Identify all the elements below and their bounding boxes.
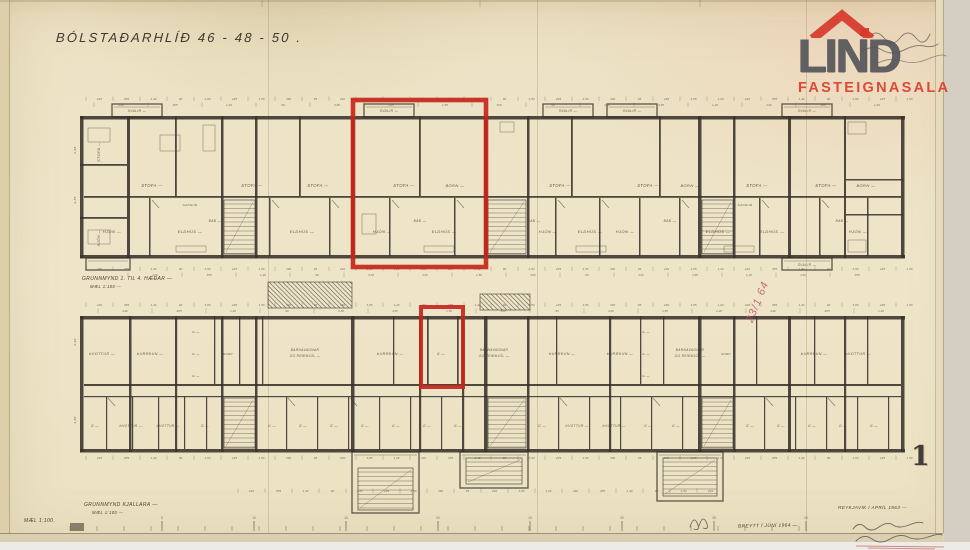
furniture-outline [500,122,514,132]
upper-plan-caption: GRUNNMYND 1. TIL 4. HÆÐAR — [82,276,172,282]
scalebar-number: 25 [528,516,532,520]
plan-wall [527,116,530,258]
room-label: ELDHÚS — [706,229,731,234]
dim-number: 390 [610,456,615,460]
dim-number: 385 [448,456,453,460]
room-label: GANGUR [183,203,198,207]
room-label: 2,40 [73,338,77,346]
plan-wall [620,397,621,449]
dim-number: 3,65 [690,303,696,307]
dim-number: 240 [603,103,609,107]
dim-number: 240 [744,97,750,101]
dim-number: 245 [555,303,561,307]
room-label: STOFA — [97,142,101,162]
dim-number: 95 [585,273,589,277]
plan-wall [846,214,903,216]
place-date: REYKJAVÍK Í APRÍL 1963 — [838,505,907,510]
dim-number: 3,65 [366,303,372,307]
room-label: GANGUR [738,203,753,207]
plan-wall [640,316,641,384]
plan-wall [663,316,664,384]
lower-plan-scale: MÆL 1:100 — [92,510,123,515]
stair-arrow [490,400,524,446]
handwriting-scribble [853,522,923,530]
room-label: OG REIÐHJÓL — [290,353,321,358]
dim-number: 1,20 [746,273,752,277]
dim-number: 90 [827,267,831,271]
plan-wall [129,316,132,452]
dim-number: 390 [496,103,501,107]
room-label: ÞVOTTUR — [89,352,115,356]
plan-wall [527,316,530,452]
room-label: STOFA — [549,183,571,188]
dim-number: 95 [638,267,642,271]
dim-number: 390 [610,97,615,101]
dim-number: 1,40 [226,103,232,107]
dim-number: 1,50 [258,267,264,271]
scalebar-number: 10 [252,516,256,520]
room-label: SORP [721,352,731,356]
dim-number: 90 [281,103,285,107]
plan-wall [589,397,590,449]
dim-number: 1,40 [302,489,308,493]
dim-number: 90 [285,309,289,313]
room-label: ÞURRKUN — [549,352,576,356]
room-label: ÞVOTTUR — [845,352,871,356]
room-label: G — [192,330,200,334]
room-label: G — [299,424,307,428]
room-label: G — [746,424,754,428]
plan-wall [764,397,765,449]
room-label: G — [192,374,200,378]
plan-wall [132,397,133,449]
dim-number: 95 [638,303,642,307]
dim-number: 3,65 [690,267,696,271]
hatch-line [332,282,352,302]
dim-number: 3,65 [692,273,698,277]
dim-number: 3,65 [518,489,524,493]
dim-number: 1,50 [582,303,588,307]
dim-number: 240 [339,456,345,460]
dim-number: 3,80 [528,97,534,101]
dim-number: 385 [772,456,777,460]
plan-wall [80,116,84,258]
door-swing [762,200,769,208]
room-label: 3,80 [73,416,77,423]
dim-number: 3,80 [528,303,534,307]
dim-number: 240 [248,489,254,493]
dim-number: 240 [744,267,750,271]
room-label: ELDHÚS — [760,229,785,234]
dim-number: 3,80 [680,489,686,493]
dim-number: 245 [879,97,885,101]
door-swing [653,398,660,406]
dim-number: 240 [339,267,345,271]
door-swing [558,200,565,208]
plan-wall [795,397,796,449]
dim-number: 1,50 [258,303,264,307]
hatch-line [482,294,498,310]
dim-number: 90 [179,97,183,101]
furniture-outline [176,246,206,252]
furniture-outline [576,246,606,252]
room-label: ÞVOTTUR — [603,424,626,428]
plan-wall [286,397,287,449]
plan-wall [901,116,905,258]
dim-number: 95 [314,267,318,271]
dim-number: 3,65 [366,456,372,460]
room-label: ELDHÚS — [432,229,457,234]
dim-number: 1,40 [150,456,156,460]
dim-number: 385 [772,97,777,101]
room-label: STOFA — [241,183,263,188]
plan-wall [158,397,159,449]
dim-number: 95 [638,97,642,101]
plan-wall [826,397,827,449]
room-label: G — [423,424,431,428]
dim-number: 1,50 [258,97,264,101]
plan-wall [175,116,177,196]
dim-number: 1,50 [906,97,912,101]
room-label: STOFA — [307,183,329,188]
room-label: HJÓN — [373,229,392,234]
dim-number: 385 [824,309,829,313]
dim-number: 95 [466,489,470,493]
dim-number: 385 [600,489,605,493]
plan-wall [214,316,215,384]
red-underline [856,546,944,547]
dim-number: 1,40 [626,489,632,493]
plan-wall [857,397,858,449]
room-label: STOFA — [637,183,659,188]
plan-wall [844,316,846,452]
dim-number: 90 [503,303,507,307]
dim-number: 1,50 [446,309,452,313]
dim-number: 240 [769,309,775,313]
dim-number: 1,20 [717,456,723,460]
plan-wall [659,116,661,196]
room-label: 3,85 [73,196,77,203]
dim-number: 1,20 [717,303,723,307]
furniture-outline [203,125,215,151]
hatch-line [268,290,286,308]
dim-number: 390 [286,456,291,460]
room-label: HJÓN — [539,229,558,234]
room-label: HJÓN — [96,230,101,247]
room-label: STOFA — [393,183,415,188]
room-label: G — [777,424,785,428]
plan-wall [788,316,791,452]
room-label: OG REIÐHJÓL — [675,353,706,358]
upper-plan-scale: MÆL 1:100 — [90,284,121,289]
plan-wall [441,397,442,449]
plan-wall [756,316,757,384]
hatch-line [487,294,503,310]
dim-number: 390 [610,267,615,271]
room-label: HJÓN — [616,229,635,234]
plan-wall [348,397,349,449]
plan-wall [239,316,240,384]
dim-number: 3,65 [690,97,696,101]
dim-number: 3,80 [528,267,534,271]
furniture-outline [848,240,866,252]
dim-number: 1,50 [906,267,912,271]
hatch-line [509,294,525,310]
dim-number: 3,80 [204,303,210,307]
dim-number: 240 [121,309,127,313]
dim-number: 1,40 [260,273,266,277]
lind-logo-subtitle: FASTEIGNASALA [798,80,958,96]
scalebar-zero-block [70,523,84,531]
dim-number: 245 [555,456,561,460]
room-label: BÖRN — [856,183,876,188]
dim-number: 1,50 [442,103,448,107]
handwriting-scribble [690,519,708,530]
dim-number: 385 [772,267,777,271]
hatch-line [527,294,530,297]
room-label: ÞVOTTUR — [566,424,589,428]
door-swing [332,200,339,208]
dim-number: 1,20 [712,103,718,107]
dim-number: 1,40 [150,267,156,271]
door-swing [602,200,609,208]
dim-number: 385 [820,103,825,107]
plan-wall [555,198,557,256]
dim-number: 245 [421,273,427,277]
dim-number: 1,50 [476,273,482,277]
door-swing [457,200,464,208]
plan-wall [149,198,151,256]
dim-number: 245 [555,97,561,101]
plan-wall [651,397,652,449]
room-label: G — [201,424,209,428]
dim-number: 90 [315,273,319,277]
stair-arrow [226,400,253,446]
room-label: SORP [223,352,233,356]
room-label: G — [330,424,338,428]
room-label: ELDHÚS — [290,229,315,234]
hatch-line [341,282,352,293]
room-label: ÞURRKUN — [377,352,404,356]
dim-number: 90 [179,303,183,307]
plan-wall [393,316,394,384]
room-label: G — [839,424,847,428]
plan-wall [317,397,318,449]
plan-wall [639,198,641,256]
dim-number: 95 [314,456,318,460]
dim-number: 385 [172,103,177,107]
dim-number: 1,20 [545,489,551,493]
dim-number: 385 [124,456,129,460]
room-label: BARNAVAGNAR [480,348,509,352]
dim-number: 390 [286,97,291,101]
dim-number: 385 [124,303,129,307]
hatch-line [500,294,516,310]
plan-wall [80,164,127,166]
dim-number: 3,65 [690,456,696,460]
room-label: 2,68 [73,146,77,154]
dim-number: 1,20 [716,309,722,313]
dim-number: 90 [827,97,831,101]
room-label: G — [642,352,650,356]
plan-wall [844,116,846,258]
lind-logo-text: LIND [798,32,958,79]
scalebar-label: MÆL 1:100. [24,518,55,524]
lind-logo: LIND FASTEIGNASALA [798,4,958,96]
dim-number: 245 [387,103,393,107]
room-label: BÖRN — [680,183,700,188]
dim-number: 240 [491,489,497,493]
dim-number: 90 [503,456,507,460]
room-label: HJÓN — [849,229,868,234]
room-label: G — [437,352,445,356]
plan-wall [80,316,84,452]
dim-number: 90 [655,489,659,493]
room-label: SVALIR — [798,109,817,113]
dim-number: 3,80 [204,97,210,101]
dim-number: 3,80 [204,267,210,271]
plan-wall [698,316,702,452]
plan-wall [175,316,177,452]
dim-number: 1,20 [393,303,399,307]
furniture-outline [160,135,180,151]
dim-number: 95 [551,103,555,107]
dim-number: 240 [96,97,102,101]
plan-wall [389,198,391,256]
dim-number: 245 [231,97,237,101]
dim-number: 240 [765,103,771,107]
plan-wall [867,198,869,256]
dim-number: 1,50 [410,489,416,493]
room-label: ÞVOTTUR — [120,424,143,428]
plan-wall [84,384,901,386]
room-label: SVALIR — [128,109,147,113]
dim-number: 240 [663,456,669,460]
door-swing [392,200,399,208]
plan-wall [556,316,557,384]
dim-number: 3,80 [852,97,858,101]
plan-wall [80,316,905,320]
door-swing [822,200,829,208]
room-label: G — [192,352,200,356]
room-label: BARNAVAGNAR [291,348,320,352]
plan-wall [206,397,207,449]
plan-wall [262,316,263,384]
plan-wall [558,397,559,449]
plan-wall [427,316,429,384]
hatch-line [523,294,531,302]
dim-number: 385 [772,303,777,307]
dim-number: 95 [314,303,318,307]
plan-wall [599,198,601,256]
dim-number: 3,80 [356,489,362,493]
scalebar-number: 5 [161,516,163,520]
lower-plan-caption: GRUNNMYND KJALLARA — [84,502,158,508]
plan-wall [184,397,185,449]
plan-wall [457,316,459,384]
room-label: STOFA — [141,183,163,188]
dim-number: 240 [96,303,102,307]
room-label: BAÐ — [528,219,541,223]
furniture-outline [848,122,866,134]
dim-number: 3,80 [334,103,340,107]
dim-number: 90 [827,456,831,460]
dim-number: 245 [231,456,237,460]
door-swing [108,398,115,406]
dim-number: 1,40 [230,309,236,313]
room-label: G — [268,424,276,428]
plan-wall [419,116,421,196]
door-swing [152,200,159,208]
hatch-line [268,299,277,308]
dim-number: 245 [231,303,237,307]
dim-number: 3,80 [528,456,534,460]
hatch-line [268,304,273,309]
dim-number: 240 [420,456,426,460]
dim-number: 1,50 [582,267,588,271]
dim-number: 245 [231,267,237,271]
room-label: STOFA — [815,183,837,188]
dim-number: 245 [383,489,389,493]
room-label: STOFA — [746,183,768,188]
room-label: SVALIR — [559,109,578,113]
dim-number: 1,40 [874,103,880,107]
hatch-line [496,294,512,310]
furniture-outline [424,246,454,252]
door-swing [766,398,773,406]
room-label: BARNAVAGNAR [676,348,705,352]
blueprint-sheet: BÓLSTAÐARHLÍÐ 46 - 48 - 50 . SVALIR —SVA… [0,0,970,550]
dim-number: 1,40 [474,303,480,307]
hatch-line [491,294,507,310]
plan-wall [329,198,331,256]
plan-wall [484,316,488,452]
plan-wall [299,116,301,196]
room-label: BAÐ — [209,219,222,223]
plan-wall [759,198,761,256]
plan-wall [221,316,224,452]
dim-number: 3,80 [852,303,858,307]
dim-number: 240 [799,273,805,277]
scalebar-number: 40 [804,516,808,520]
plan-wall [269,198,271,256]
room-label: G — [644,424,652,428]
dim-number: 1,40 [798,456,804,460]
room-label: ELDHÚS — [178,229,203,234]
stair-arrow [704,400,731,446]
dim-number: 90 [179,456,183,460]
dim-number: 90 [503,267,507,271]
dim-number: 95 [638,456,642,460]
red-underline [868,548,935,549]
plan-wall [867,316,868,384]
page-number: 1 [911,441,930,472]
dim-number: 3,80 [368,273,374,277]
dim-number: 95 [555,309,559,313]
plan-wall [379,397,380,449]
room-label: G — [870,424,878,428]
revision-note: BREYTT Í JÚNÍ 1964 — [738,523,798,529]
dim-number: 240 [339,303,345,307]
dim-number: 240 [96,267,102,271]
scalebar-number: 15 [344,516,348,520]
plan-wall [819,198,821,256]
dim-number: 1,20 [717,267,723,271]
hatch-line [480,301,489,310]
dim-number: 3,80 [338,309,344,313]
dim-number: 240 [96,456,102,460]
dim-number: 240 [117,103,123,107]
